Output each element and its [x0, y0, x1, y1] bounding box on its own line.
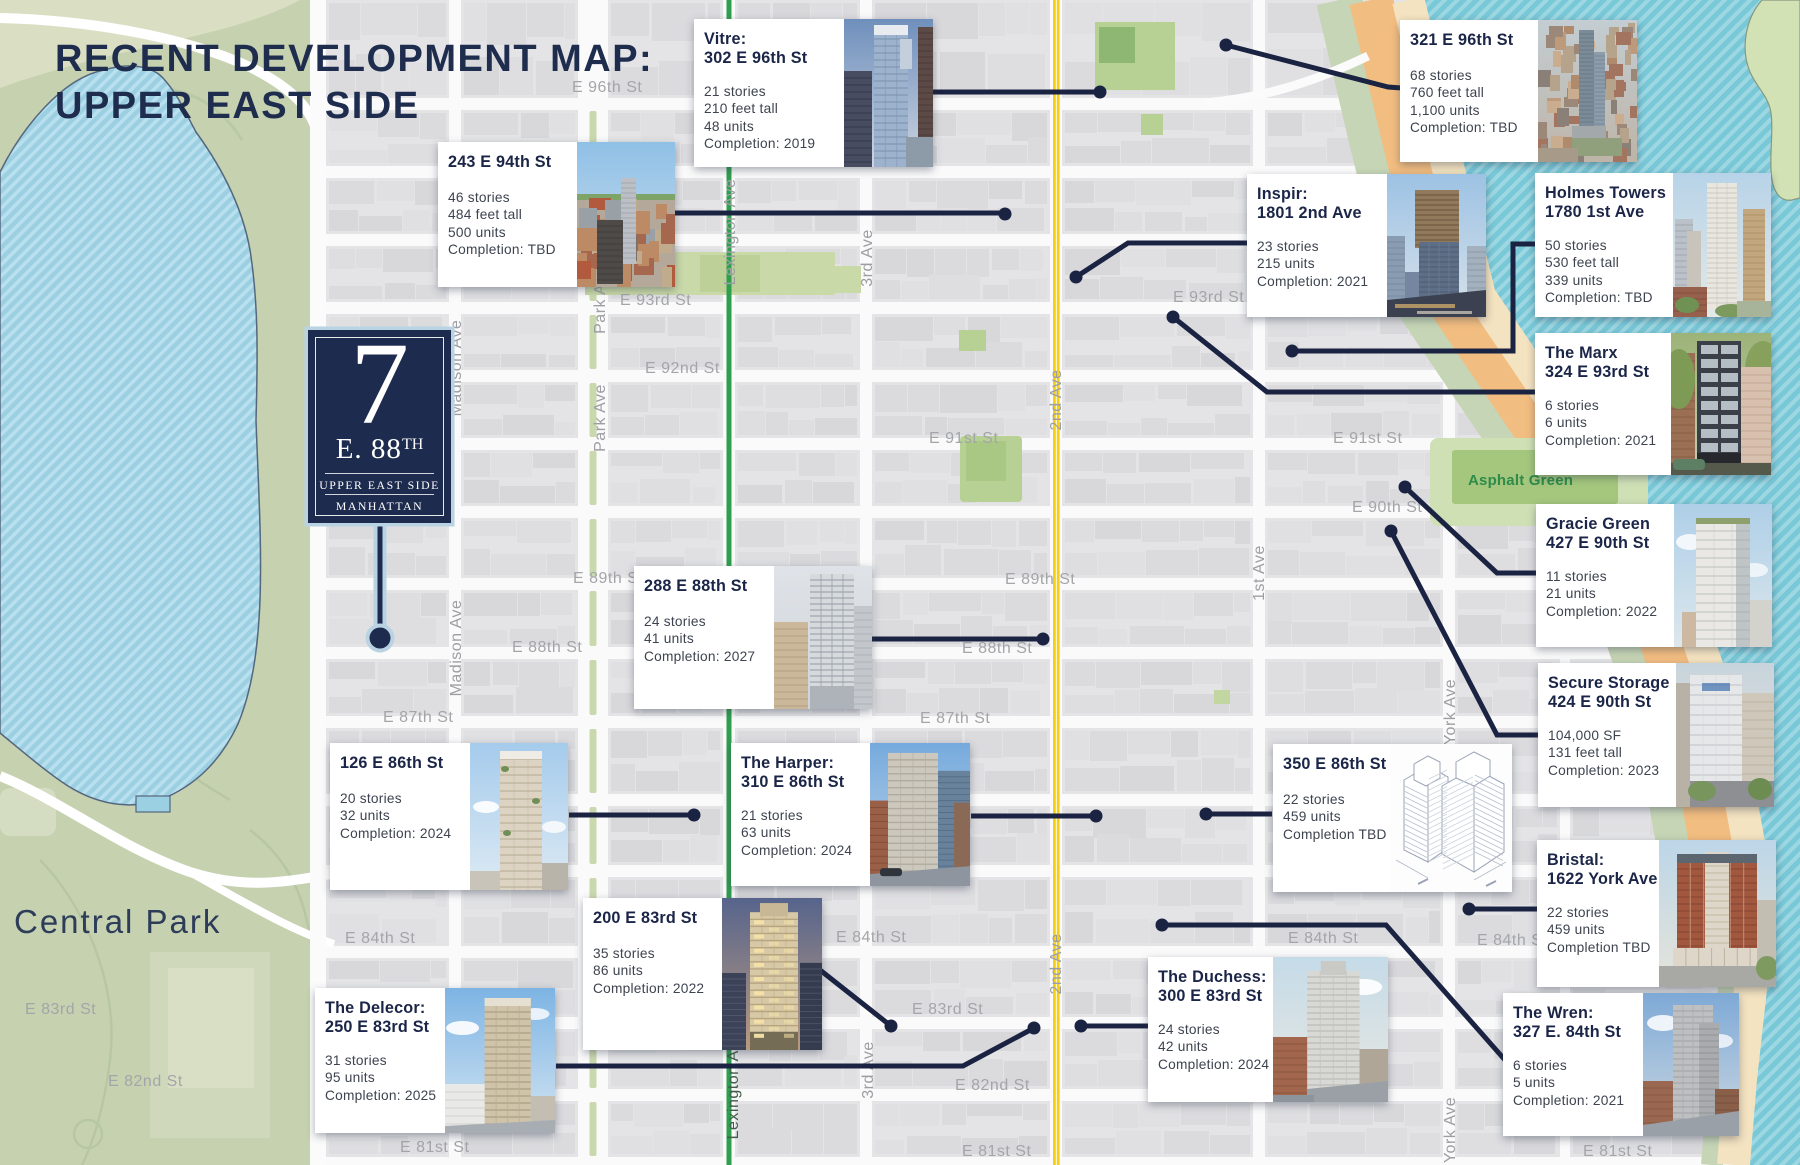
svg-text:E 84th St: E 84th St: [836, 929, 906, 946]
svg-text:E 91st St: E 91st St: [929, 430, 998, 447]
svg-text:Park Ave: Park Ave: [592, 384, 609, 452]
svg-text:2nd Ave: 2nd Ave: [1048, 369, 1065, 430]
svg-text:E 88th St: E 88th St: [962, 640, 1032, 657]
svg-text:E 91st St: E 91st St: [1333, 430, 1402, 447]
svg-text:E 92nd St: E 92nd St: [645, 360, 720, 377]
svg-text:Lexington Ave: Lexington Ave: [722, 179, 739, 286]
svg-text:E 87th St: E 87th St: [383, 709, 453, 726]
svg-text:E 88th St: E 88th St: [512, 639, 582, 656]
svg-text:E 81st St: E 81st St: [962, 1143, 1031, 1160]
svg-text:E 93rd St: E 93rd St: [1173, 289, 1244, 306]
svg-text:E 83rd St: E 83rd St: [25, 1001, 96, 1018]
svg-text:E 87th St: E 87th St: [920, 710, 990, 727]
svg-text:E 89th St: E 89th St: [1005, 571, 1075, 588]
svg-text:E 84th S: E 84th S: [1477, 932, 1542, 949]
svg-text:E 81st St: E 81st St: [1583, 1143, 1652, 1160]
svg-text:Madison Ave: Madison Ave: [448, 600, 465, 697]
svg-text:2nd Ave: 2nd Ave: [1048, 933, 1065, 994]
svg-text:E 82nd St: E 82nd St: [955, 1077, 1030, 1094]
svg-text:E 83rd St: E 83rd St: [912, 1001, 983, 1018]
svg-text:E 93rd St: E 93rd St: [620, 292, 691, 309]
svg-text:E 90th St: E 90th St: [1352, 499, 1422, 516]
svg-text:E 84th St: E 84th St: [1288, 930, 1358, 947]
svg-text:York Ave: York Ave: [1442, 1097, 1459, 1163]
svg-text:3rd Ave: 3rd Ave: [859, 229, 876, 286]
svg-text:3rd Ave: 3rd Ave: [860, 1041, 877, 1098]
svg-text:E 82nd St: E 82nd St: [108, 1073, 183, 1090]
svg-text:York Ave: York Ave: [1442, 679, 1459, 745]
svg-text:1st Ave: 1st Ave: [1251, 545, 1268, 601]
svg-text:E 89th St: E 89th St: [573, 570, 643, 587]
svg-text:E 84th St: E 84th St: [345, 930, 415, 947]
svg-text:E 81st St: E 81st St: [400, 1139, 469, 1156]
